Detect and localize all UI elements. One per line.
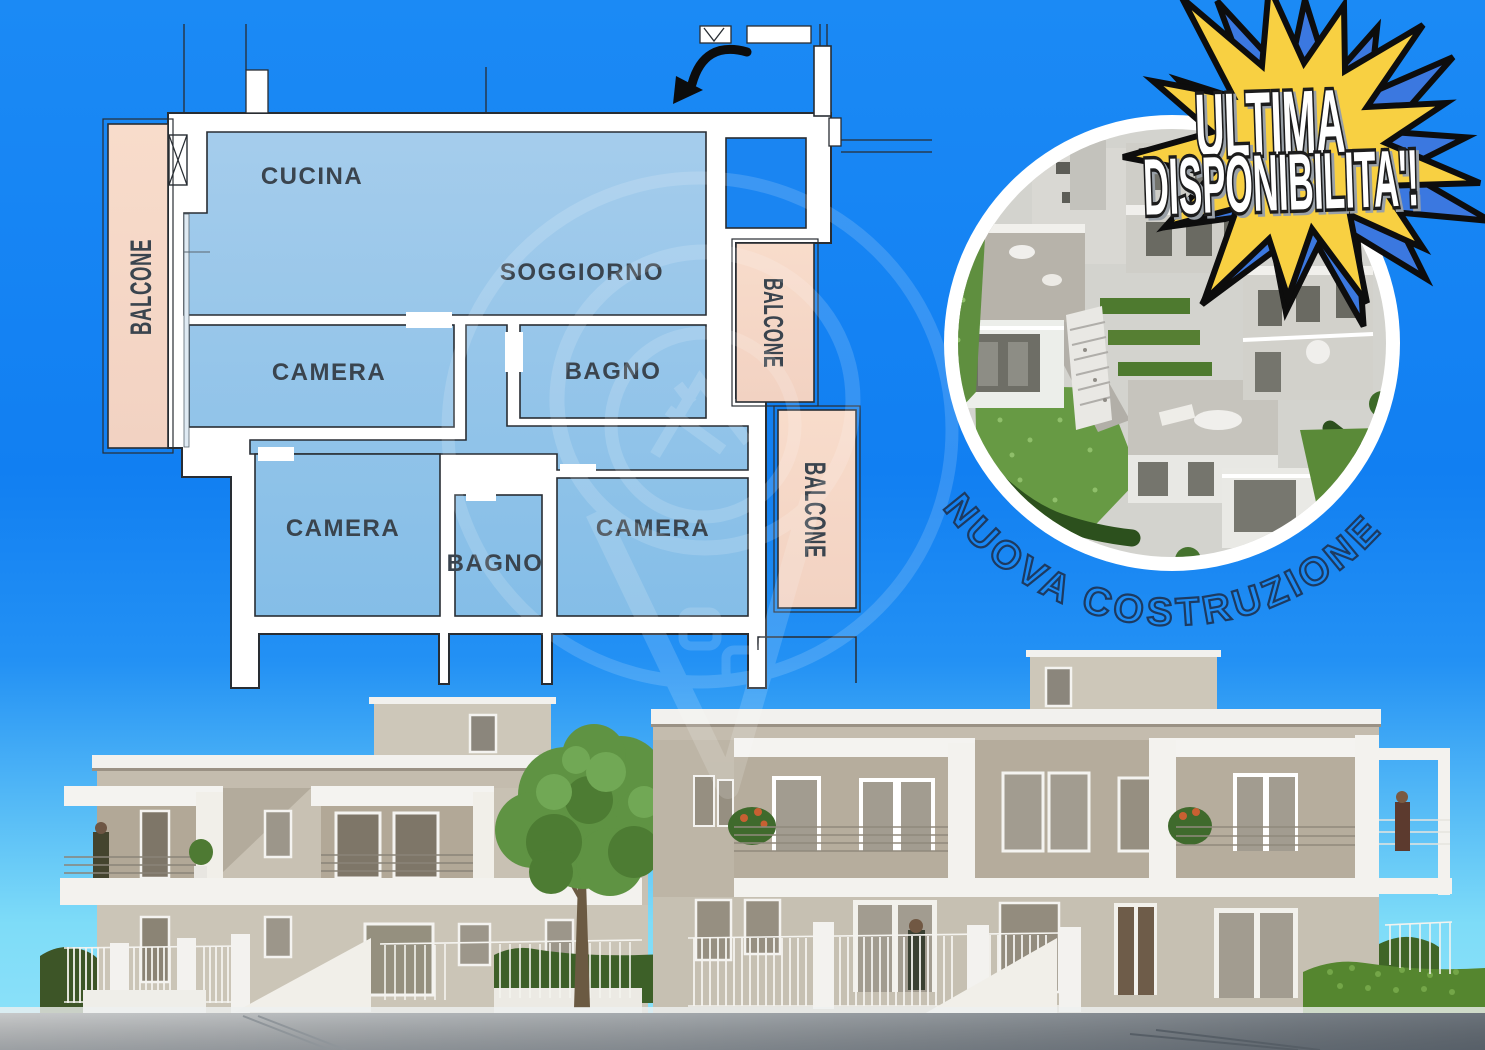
svg-text:BALCONE: BALCONE: [125, 239, 159, 335]
svg-text:BAGNO: BAGNO: [565, 358, 662, 385]
svg-text:CUCINA: CUCINA: [261, 163, 363, 190]
svg-text:DISPONIBILITA'!: DISPONIBILITA'!: [1142, 134, 1421, 233]
svg-text:CAMERA: CAMERA: [272, 359, 386, 386]
svg-text:CAMERA: CAMERA: [286, 515, 400, 542]
